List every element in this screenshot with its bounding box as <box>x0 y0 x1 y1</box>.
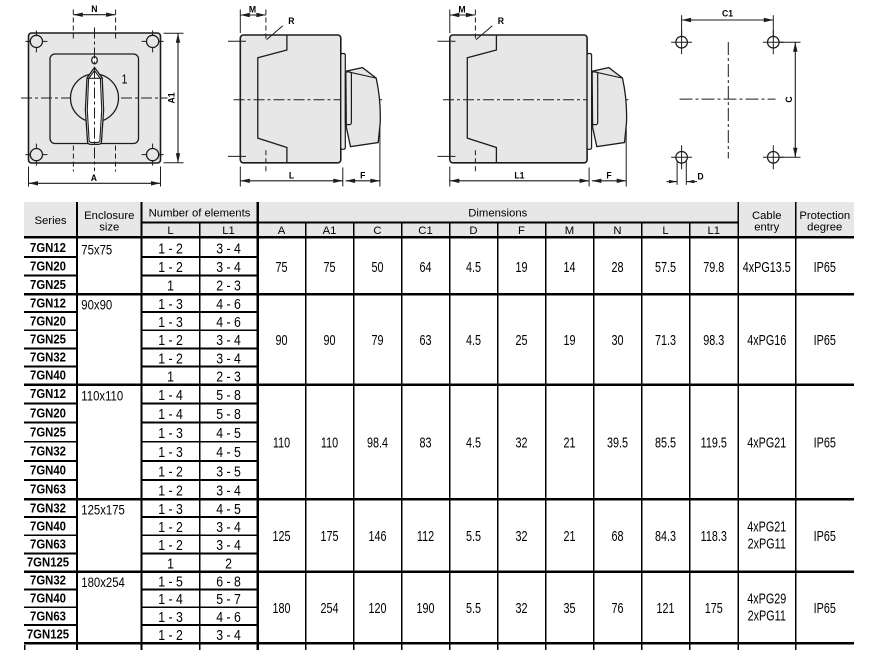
svg-text:5 - 7: 5 - 7 <box>216 591 241 607</box>
svg-text:175: 175 <box>321 527 339 544</box>
svg-text:IP65: IP65 <box>814 258 836 275</box>
svg-text:110: 110 <box>273 434 290 451</box>
svg-text:7GN25: 7GN25 <box>30 277 66 292</box>
svg-text:75: 75 <box>324 258 336 275</box>
svg-text:4 - 6: 4 - 6 <box>216 314 241 330</box>
svg-text:3 - 4: 3 - 4 <box>216 241 241 257</box>
svg-text:1 - 3: 1 - 3 <box>158 444 183 460</box>
svg-text:1 - 2: 1 - 2 <box>158 537 183 553</box>
svg-text:1 - 3: 1 - 3 <box>158 314 183 330</box>
svg-text:7GN20: 7GN20 <box>30 406 66 421</box>
svg-text:IP65: IP65 <box>814 527 836 544</box>
svg-text:3 - 5: 3 - 5 <box>216 463 241 479</box>
svg-text:size: size <box>99 222 119 234</box>
svg-text:118.3: 118.3 <box>701 527 727 544</box>
svg-text:14: 14 <box>564 258 576 275</box>
svg-text:1 - 2: 1 - 2 <box>158 482 183 498</box>
svg-text:90x90: 90x90 <box>81 296 112 313</box>
svg-text:4 - 6: 4 - 6 <box>216 609 241 625</box>
svg-text:4xPG16: 4xPG16 <box>747 331 786 348</box>
svg-text:1 - 3: 1 - 3 <box>158 609 183 625</box>
svg-text:90: 90 <box>276 331 288 348</box>
svg-text:3 - 4: 3 - 4 <box>216 332 241 348</box>
svg-text:L1: L1 <box>222 225 235 237</box>
svg-text:1 - 2: 1 - 2 <box>158 519 183 535</box>
svg-text:7GN125: 7GN125 <box>27 626 69 641</box>
svg-text:254: 254 <box>321 599 339 616</box>
svg-text:L1: L1 <box>707 225 720 237</box>
svg-text:F: F <box>518 225 525 237</box>
svg-text:7GN40: 7GN40 <box>30 463 66 478</box>
svg-text:7GN32: 7GN32 <box>30 500 66 515</box>
svg-text:79: 79 <box>372 331 384 348</box>
svg-text:L: L <box>167 225 173 237</box>
svg-text:1: 1 <box>167 368 174 384</box>
svg-text:7GN125: 7GN125 <box>27 555 69 570</box>
svg-text:21: 21 <box>564 434 576 451</box>
svg-text:85.5: 85.5 <box>655 434 676 451</box>
svg-text:1 - 4: 1 - 4 <box>158 387 183 403</box>
svg-text:1 - 2: 1 - 2 <box>158 259 183 275</box>
svg-text:N: N <box>613 225 621 237</box>
svg-text:M: M <box>249 4 256 14</box>
svg-text:1: 1 <box>167 278 174 294</box>
svg-text:76: 76 <box>612 599 624 616</box>
svg-text:68: 68 <box>612 527 624 544</box>
svg-text:35: 35 <box>564 599 576 616</box>
svg-text:3 - 4: 3 - 4 <box>216 259 241 275</box>
svg-text:A1: A1 <box>323 225 337 237</box>
svg-text:21: 21 <box>564 527 576 544</box>
svg-text:1 - 2: 1 - 2 <box>158 332 183 348</box>
svg-text:98.3: 98.3 <box>703 331 724 348</box>
svg-text:75x75: 75x75 <box>81 241 112 258</box>
svg-text:7GN25: 7GN25 <box>30 332 66 347</box>
svg-text:F: F <box>606 170 612 180</box>
svg-text:32: 32 <box>516 599 528 616</box>
svg-text:2 - 3: 2 - 3 <box>216 368 241 384</box>
svg-text:7GN40: 7GN40 <box>30 519 66 534</box>
svg-text:D: D <box>697 171 704 181</box>
svg-text:120: 120 <box>369 599 387 616</box>
svg-text:4 - 6: 4 - 6 <box>216 296 241 312</box>
svg-text:28: 28 <box>612 258 624 275</box>
svg-text:7GN40: 7GN40 <box>30 591 66 606</box>
svg-text:121: 121 <box>657 599 675 616</box>
svg-text:1 - 2: 1 - 2 <box>158 627 183 643</box>
svg-text:39.5: 39.5 <box>607 434 628 451</box>
svg-text:IP65: IP65 <box>814 599 836 616</box>
svg-text:71.3: 71.3 <box>655 331 676 348</box>
svg-text:C1: C1 <box>418 225 432 237</box>
svg-text:7GN40: 7GN40 <box>30 368 66 383</box>
svg-text:4xPG21: 4xPG21 <box>747 518 786 535</box>
svg-text:Series: Series <box>34 215 66 227</box>
svg-text:110: 110 <box>321 434 338 451</box>
svg-text:Dimensions: Dimensions <box>468 208 527 220</box>
svg-text:50: 50 <box>372 258 384 275</box>
svg-text:1 - 2: 1 - 2 <box>158 350 183 366</box>
svg-text:75: 75 <box>276 258 288 275</box>
svg-text:IP65: IP65 <box>814 434 836 451</box>
svg-text:A1: A1 <box>166 92 176 103</box>
svg-text:1 - 3: 1 - 3 <box>158 296 183 312</box>
svg-text:D: D <box>469 225 477 237</box>
svg-text:7GN32: 7GN32 <box>30 350 66 365</box>
svg-text:125: 125 <box>273 527 291 544</box>
svg-text:Enclosure: Enclosure <box>84 210 134 222</box>
svg-text:4.5: 4.5 <box>466 331 481 348</box>
svg-text:3 - 4: 3 - 4 <box>216 519 241 535</box>
svg-text:L: L <box>662 225 668 237</box>
svg-text:63: 63 <box>420 331 432 348</box>
svg-text:1 - 2: 1 - 2 <box>158 241 183 257</box>
svg-text:7GN20: 7GN20 <box>30 314 66 329</box>
svg-text:4xPG21: 4xPG21 <box>747 434 786 451</box>
svg-text:7GN32: 7GN32 <box>30 444 66 459</box>
svg-text:83: 83 <box>420 434 432 451</box>
svg-text:degree: degree <box>807 222 842 234</box>
svg-text:175: 175 <box>705 599 723 616</box>
svg-text:N: N <box>91 4 97 14</box>
svg-text:1 - 5: 1 - 5 <box>158 573 183 589</box>
svg-text:C: C <box>373 225 381 237</box>
svg-text:30: 30 <box>612 331 624 348</box>
svg-text:5 - 8: 5 - 8 <box>216 387 241 403</box>
svg-text:110x110: 110x110 <box>81 387 123 404</box>
svg-text:2 - 3: 2 - 3 <box>216 278 241 294</box>
svg-text:1 - 4: 1 - 4 <box>158 406 183 422</box>
svg-text:IP65: IP65 <box>814 331 836 348</box>
svg-text:3 - 4: 3 - 4 <box>216 482 241 498</box>
svg-text:57.5: 57.5 <box>655 258 676 275</box>
svg-text:1 - 2: 1 - 2 <box>158 463 183 479</box>
svg-text:7GN12: 7GN12 <box>30 295 66 310</box>
svg-text:R: R <box>288 15 295 25</box>
svg-text:1: 1 <box>122 73 128 87</box>
svg-text:3 - 4: 3 - 4 <box>216 627 241 643</box>
svg-text:7GN12: 7GN12 <box>30 240 66 255</box>
svg-text:7GN63: 7GN63 <box>30 482 66 497</box>
svg-text:2: 2 <box>225 555 232 571</box>
svg-text:R: R <box>498 15 505 25</box>
svg-text:6 - 8: 6 - 8 <box>216 573 241 589</box>
svg-text:C1: C1 <box>722 8 733 18</box>
svg-text:L1: L1 <box>514 170 524 180</box>
svg-text:146: 146 <box>369 527 387 544</box>
svg-text:4.5: 4.5 <box>466 258 481 275</box>
svg-text:3 - 4: 3 - 4 <box>216 350 241 366</box>
svg-text:2xPG11: 2xPG11 <box>748 607 786 624</box>
svg-text:4.5: 4.5 <box>466 434 481 451</box>
svg-text:84.3: 84.3 <box>655 527 676 544</box>
svg-text:4 - 5: 4 - 5 <box>216 425 241 441</box>
svg-text:90: 90 <box>324 331 336 348</box>
svg-text:A: A <box>91 173 98 183</box>
svg-text:2xPG11: 2xPG11 <box>748 535 786 552</box>
svg-text:L: L <box>289 170 295 180</box>
svg-text:98.4: 98.4 <box>367 434 388 451</box>
svg-text:125x175: 125x175 <box>81 501 125 518</box>
svg-text:19: 19 <box>564 331 576 348</box>
svg-text:32: 32 <box>516 527 528 544</box>
svg-text:C: C <box>783 96 793 103</box>
svg-text:112: 112 <box>417 527 434 544</box>
svg-text:Number of elements: Number of elements <box>149 208 251 220</box>
svg-text:entry: entry <box>754 222 779 234</box>
svg-text:19: 19 <box>516 258 528 275</box>
svg-text:1: 1 <box>167 555 174 571</box>
svg-text:1 - 4: 1 - 4 <box>158 591 183 607</box>
svg-text:64: 64 <box>420 258 432 275</box>
svg-text:4 - 5: 4 - 5 <box>216 501 241 517</box>
svg-text:5.5: 5.5 <box>466 527 481 544</box>
svg-text:4xPG13.5: 4xPG13.5 <box>743 258 791 275</box>
svg-text:4xPG29: 4xPG29 <box>747 590 786 607</box>
svg-text:Cable: Cable <box>752 210 782 222</box>
svg-text:Protection: Protection <box>799 210 850 222</box>
svg-text:3 - 4: 3 - 4 <box>216 537 241 553</box>
svg-text:180: 180 <box>273 599 291 616</box>
svg-text:5.5: 5.5 <box>466 599 481 616</box>
svg-text:7GN12: 7GN12 <box>30 386 66 401</box>
svg-text:25: 25 <box>516 331 528 348</box>
svg-text:A: A <box>278 225 286 237</box>
svg-text:5 - 8: 5 - 8 <box>216 406 241 422</box>
svg-text:7GN25: 7GN25 <box>30 425 66 440</box>
svg-text:1 - 3: 1 - 3 <box>158 425 183 441</box>
svg-text:190: 190 <box>417 599 435 616</box>
svg-text:7GN32: 7GN32 <box>30 573 66 588</box>
svg-text:7GN63: 7GN63 <box>30 609 66 624</box>
svg-text:119.5: 119.5 <box>701 434 727 451</box>
svg-text:7GN63: 7GN63 <box>30 537 66 552</box>
svg-text:F: F <box>360 170 366 180</box>
svg-text:1 - 3: 1 - 3 <box>158 501 183 517</box>
svg-text:7GN20: 7GN20 <box>30 259 66 274</box>
svg-text:M: M <box>565 225 574 237</box>
svg-text:M: M <box>458 4 465 14</box>
svg-text:79.8: 79.8 <box>703 258 724 275</box>
svg-text:4 - 5: 4 - 5 <box>216 444 241 460</box>
svg-text:32: 32 <box>516 434 528 451</box>
svg-text:180x254: 180x254 <box>81 574 125 591</box>
